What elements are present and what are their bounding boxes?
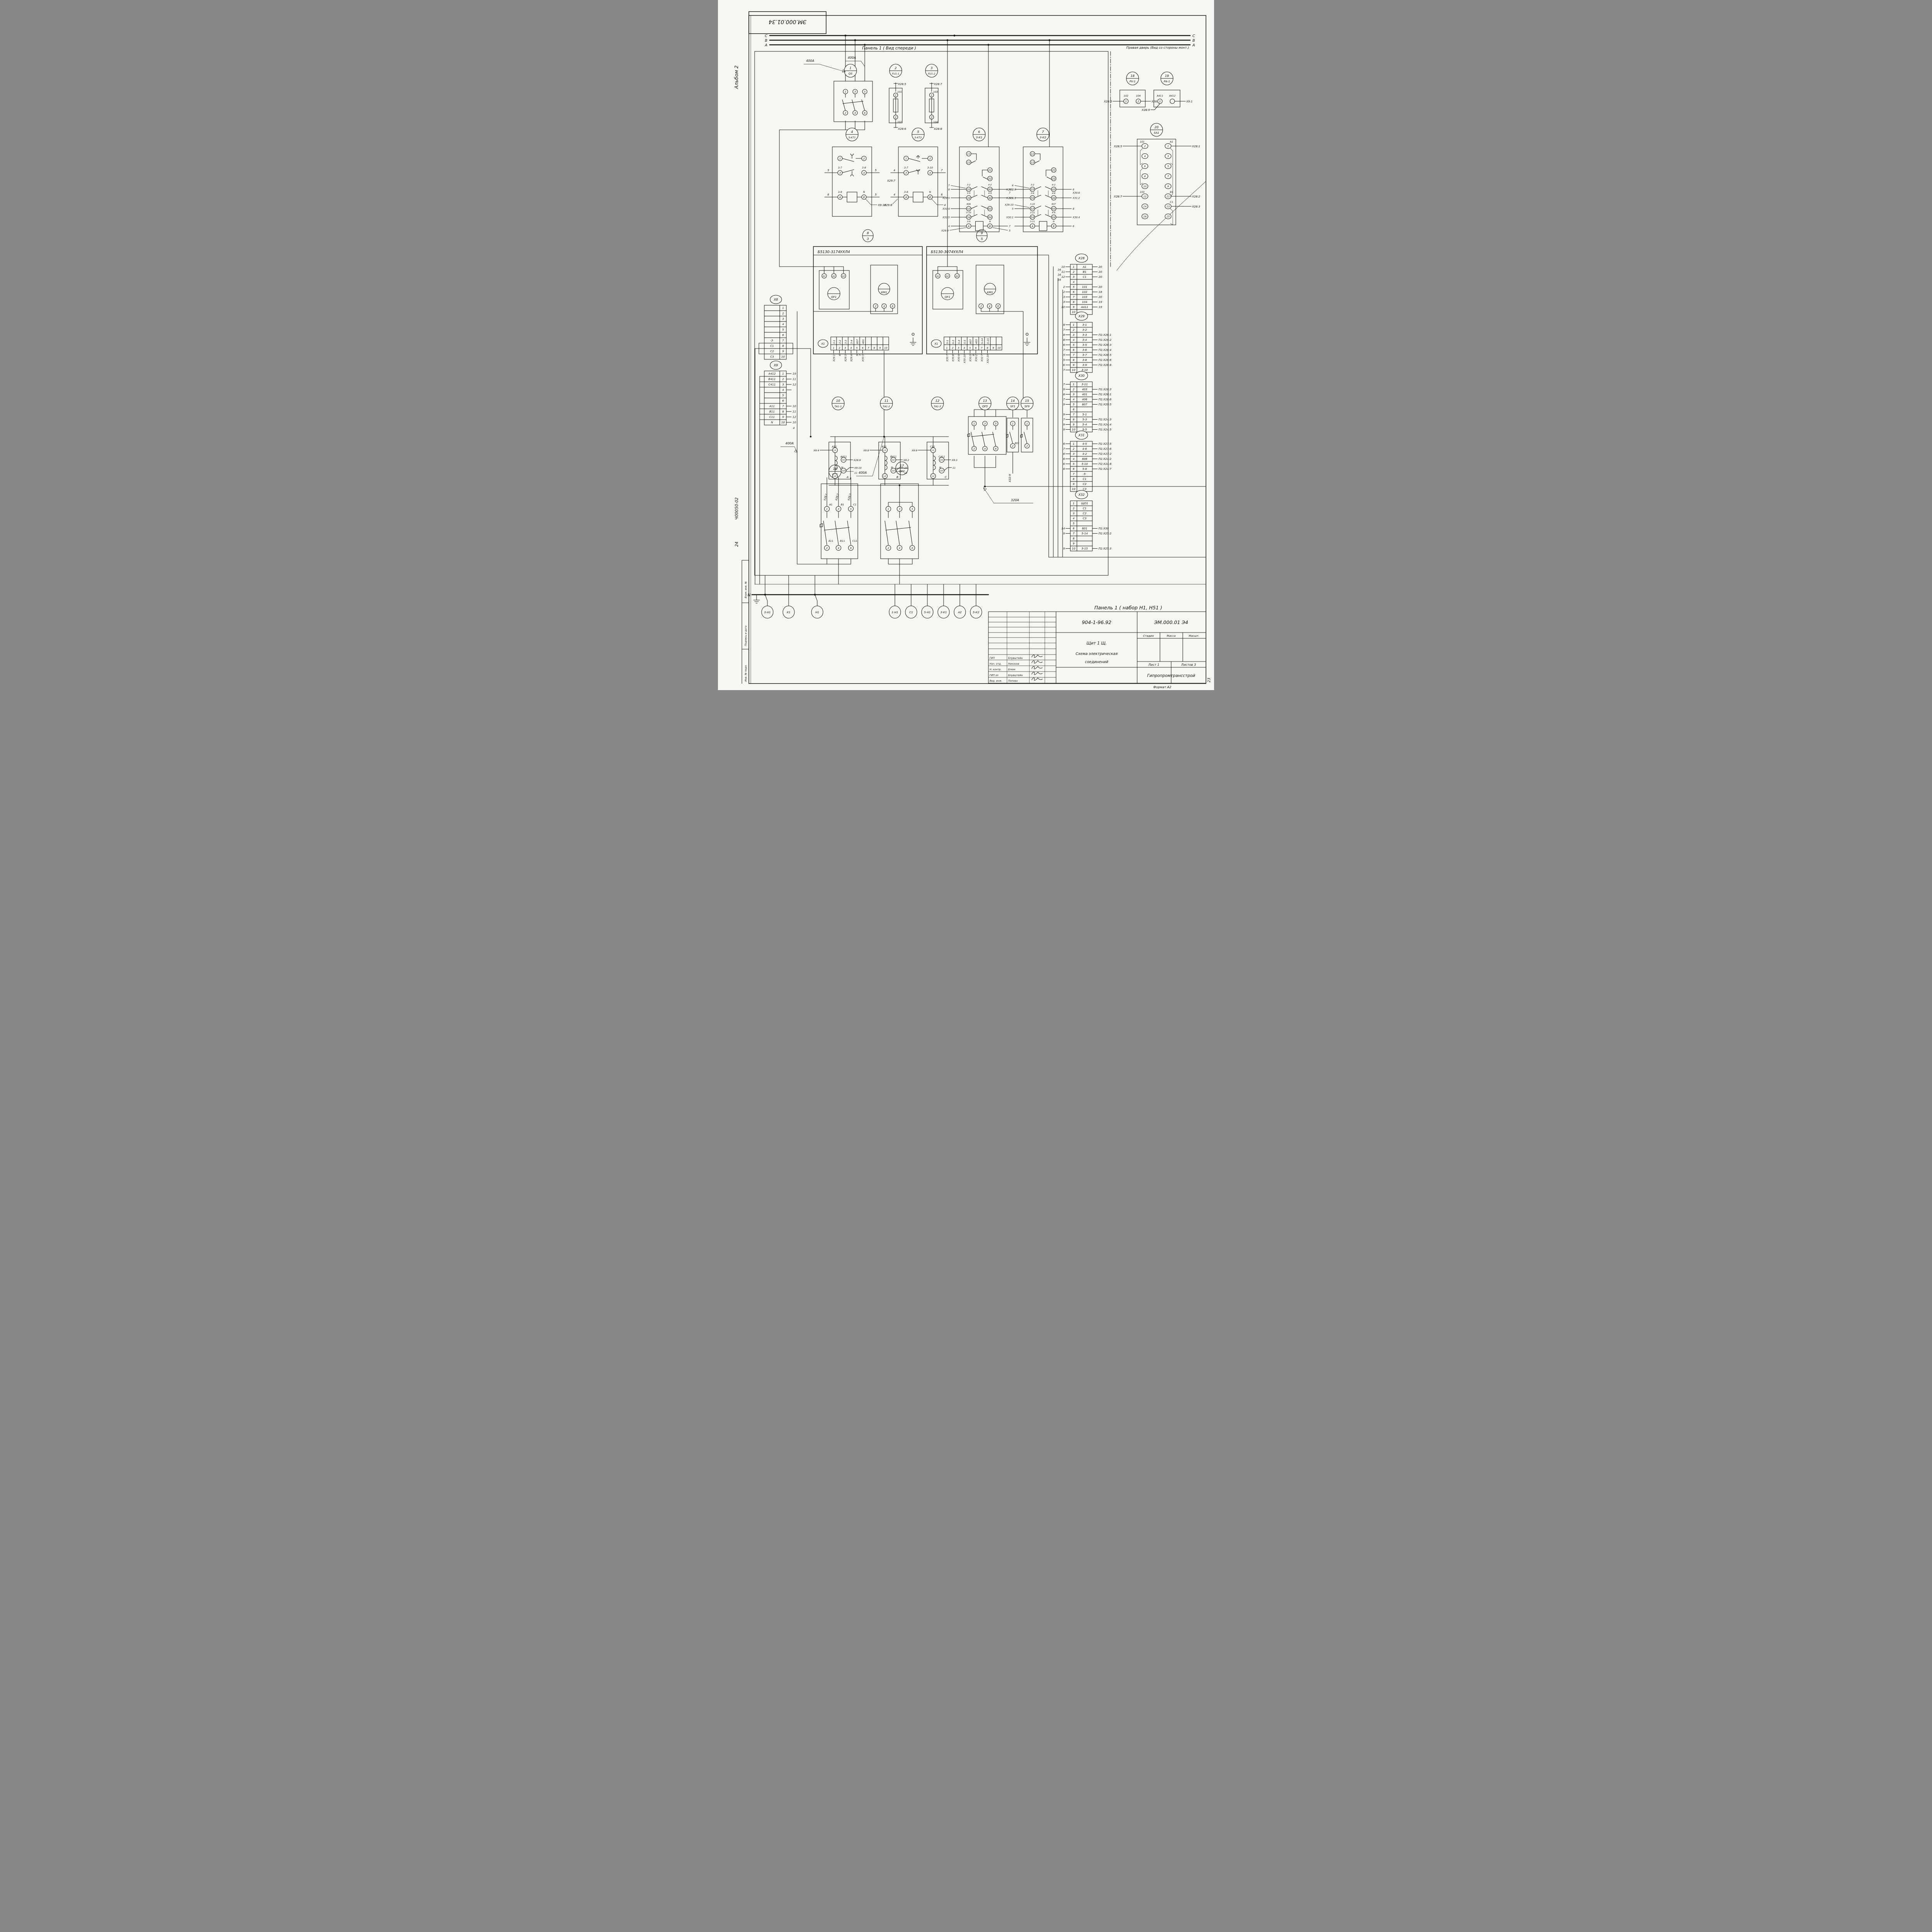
svg-text:5: 5: [782, 394, 784, 397]
svg-text:4: 4: [893, 168, 895, 172]
svg-text:7: 7: [1167, 175, 1169, 178]
svg-text:6: 6: [978, 130, 980, 134]
tag-SF9: 15SF9: [1021, 397, 1033, 410]
svg-text:N: N: [989, 221, 991, 223]
amp-label: 320А: [1011, 498, 1019, 502]
svg-text:21: 21: [1052, 169, 1055, 172]
svg-text:102: 102: [1124, 94, 1128, 97]
svg-text:19: 19: [793, 372, 796, 376]
svg-text:7: 7: [941, 168, 943, 172]
svg-text:5-3: 5-3: [1082, 418, 1087, 421]
x1-cell: 10: [883, 337, 889, 350]
strip-row: 34018П2.Х28:1: [1063, 392, 1111, 397]
svg-text:10: 10: [1072, 428, 1076, 431]
svg-text:4: 4: [893, 193, 895, 196]
format-label: Формат А2: [1153, 685, 1172, 689]
svg-text:П2.Х30: П2.Х30: [1099, 527, 1109, 530]
svg-text:5: 5: [864, 90, 866, 94]
svg-text:А3: А3: [842, 276, 845, 278]
svg-text:3-11: 3-11: [1030, 212, 1035, 214]
strip-row: 7·5·: [1070, 471, 1092, 476]
svg-text:6: 6: [1144, 165, 1146, 168]
svg-text:4: 4: [883, 305, 885, 308]
svg-text:44: 44: [988, 197, 992, 200]
svg-text:2: 2: [1026, 445, 1028, 448]
strip-row: 4С3: [1070, 516, 1092, 521]
svg-text:8: 8: [948, 188, 950, 191]
strip-row: 4: [1070, 279, 1092, 284]
svg-text:U2: U2: [940, 470, 943, 472]
svg-text:2: 2: [1073, 447, 1075, 451]
svg-text:3-Н1: 3-Н1: [764, 611, 770, 614]
svg-text:N: N: [1053, 221, 1055, 223]
svg-text:11: 11: [854, 471, 857, 474]
svg-text:ГИП: ГИП: [990, 656, 995, 660]
svg-text:406: 406: [1082, 398, 1087, 401]
svg-text:1: 1: [839, 157, 841, 160]
page-number: 23: [1207, 678, 1211, 682]
svg-text:63: 63: [988, 207, 992, 211]
strip-row: 4: [764, 321, 786, 327]
svg-text:П2.Х28:3: П2.Х28:3: [1099, 388, 1112, 391]
svg-text:А2: А2: [946, 276, 949, 278]
svg-text:С3: С3: [1083, 517, 1087, 520]
svg-text:103: 103: [1140, 190, 1145, 194]
svg-text:10: 10: [904, 466, 907, 469]
svg-text:С1: С1: [1083, 477, 1087, 481]
sheet-number-hand: 24: [735, 542, 739, 547]
sheets-label: Листов 3: [1181, 663, 1196, 667]
strip-row: 33-38П2.Х26:1: [1063, 332, 1111, 337]
title-block: Панель 1 ( набор Н1, Н51 ) 904-1-96.92 Э…: [988, 605, 1206, 683]
svg-text:6: 6: [1063, 467, 1065, 471]
svg-text:В1: В1: [1083, 270, 1087, 274]
strip-row: 34-26П2:Х27:2: [1063, 451, 1111, 456]
svg-text:Х30:8: Х30:8: [1072, 191, 1080, 194]
svg-text:А: А: [846, 475, 849, 479]
panel-set-title: Панель 1 ( набор Н1, Н51 ): [1094, 605, 1162, 611]
x9-extra-anno: 4: [793, 426, 795, 430]
svg-text:9: 9: [992, 347, 994, 350]
svg-text:8: 8: [1073, 477, 1075, 481]
svg-text:ГИП эл: ГИП эл: [990, 673, 998, 677]
svg-text:С11: С11: [852, 539, 857, 543]
svg-text:3-4: 3-4: [850, 340, 853, 344]
svg-text:3: 3: [905, 172, 907, 175]
margin-label: Подпись и дата: [744, 626, 747, 646]
svg-text:102: 102: [1082, 290, 1087, 294]
svg-text:3: 3: [839, 172, 841, 175]
svg-text:2: 2: [782, 312, 784, 315]
svg-text:3-5: 3-5: [967, 192, 971, 195]
strip-row: В11811: [764, 409, 796, 414]
svg-text:Х28:1: Х28:1: [1192, 145, 1200, 148]
bus-label-b-left: В: [765, 39, 767, 43]
svg-text:2: 2: [1073, 270, 1075, 274]
svg-text:А1: А1: [936, 276, 939, 278]
svg-text:103: 103: [933, 90, 938, 94]
strip-row: 9А4111019: [1061, 304, 1102, 310]
svg-text:С2: С2: [1083, 512, 1087, 515]
svg-text:807: 807: [1082, 403, 1087, 406]
svg-text:Н1: Н1: [815, 611, 819, 614]
svg-text:2: 2: [1063, 285, 1065, 289]
svg-text:1: 1: [849, 66, 851, 70]
tag-3-К2: 73-К2: [1037, 128, 1049, 141]
strip-row: 13-18: [1063, 322, 1092, 327]
svg-text:L2: L2: [884, 475, 886, 478]
svg-text:6: 6: [1063, 462, 1065, 466]
svg-text:11: 11: [793, 410, 796, 413]
tag-FU1-1: 2FU1-1: [889, 64, 902, 77]
svg-text:1: 1: [973, 422, 975, 425]
svg-text:5: 5: [969, 347, 971, 350]
amp-label: 400А: [859, 471, 867, 474]
svg-text:7: 7: [1009, 191, 1010, 194]
tag-block-9: 95: [976, 230, 987, 242]
svg-text:А412: А412: [768, 372, 776, 376]
svg-text:2: 2: [929, 157, 931, 160]
svg-text:12: 12: [967, 161, 970, 164]
svg-text:5: 5: [1063, 358, 1065, 362]
svg-text:7: 7: [1073, 472, 1075, 476]
svg-text:ЩО1: ЩО1: [1081, 502, 1088, 505]
svg-text:20: 20: [1099, 285, 1102, 289]
svg-text:5: 5: [875, 193, 877, 196]
svg-text:4: 4: [1073, 398, 1075, 401]
svg-text:Х29:9: Х29:9: [941, 229, 949, 232]
svg-text:Х9:2: Х9:2: [903, 459, 909, 462]
strip-row: 44067П2.Х28:6: [1063, 397, 1111, 402]
svg-text:33: 33: [967, 188, 970, 191]
svg-text:Х32:7: Х32:7: [981, 354, 984, 362]
svg-text:А11: А11: [769, 405, 775, 408]
tag-PV-1: 18PV-1: [1126, 72, 1139, 85]
tag-ТА1-3: 12ТА1-3: [931, 397, 944, 410]
svg-text:13: 13: [983, 399, 987, 403]
svg-text:3: 3: [844, 347, 846, 350]
svg-text:2: 2: [973, 447, 975, 451]
svg-text:SF1: SF1: [1010, 405, 1015, 408]
svg-text:1: 1: [833, 347, 834, 350]
svg-text:2: 2: [863, 157, 865, 160]
svg-text:1: 1: [946, 347, 947, 350]
svg-text:5: 5: [875, 168, 877, 172]
svg-text:U1: U1: [940, 459, 943, 461]
svg-text:Х9:1: Х9:1: [1186, 100, 1193, 103]
svg-text:3-1: 3-1: [833, 340, 836, 344]
svg-text:3-9: 3-9: [967, 221, 971, 223]
svg-text:U2: U2: [842, 470, 845, 472]
svg-text:Х30: Х30: [1078, 374, 1085, 378]
svg-text:5: 5: [1073, 285, 1075, 289]
svg-text:4: 4: [948, 225, 950, 228]
svg-text:1: 1: [905, 157, 907, 160]
svg-text:3: 3: [1073, 512, 1075, 515]
svg-text:6: 6: [1063, 452, 1065, 456]
svg-text:Х8: Х8: [774, 298, 778, 301]
svg-text:QF1: QF1: [945, 295, 950, 299]
svg-text:3-9: 3-9: [838, 190, 842, 194]
bus-label-a-left: А: [765, 43, 768, 48]
svg-text:9: 9: [1073, 423, 1075, 426]
tag-ТА1-2: 11ТА1-2: [880, 397, 893, 410]
svg-text:3: 3: [1073, 275, 1075, 279]
svg-text:8: 8: [782, 410, 784, 413]
svg-text:L1: L1: [932, 449, 935, 452]
amp-label: 400А: [848, 56, 856, 60]
svg-text:8: 8: [986, 347, 988, 350]
svg-text:А1: А1: [1170, 140, 1173, 143]
svg-text:16: 16: [1058, 268, 1061, 272]
svg-text:·5·: ·5·: [1083, 472, 1086, 476]
svg-text:5: 5: [1073, 403, 1075, 406]
svg-text:1: 1: [845, 90, 846, 94]
svg-text:SA1: SA1: [1154, 131, 1159, 134]
strip-row: 5101220: [1063, 284, 1102, 289]
svg-text:1: 1: [1012, 422, 1014, 425]
svg-text:5-1: 5-1: [946, 340, 949, 344]
svg-text:3: 3: [867, 237, 869, 241]
svg-text:А412: А412: [1169, 94, 1176, 97]
svg-text:С1: С1: [853, 503, 857, 506]
svg-text:10: 10: [793, 405, 796, 408]
x1-cell: 3-11Х29:1: [831, 337, 837, 362]
strip-row: 23-27: [1063, 327, 1092, 332]
svg-text:4-6: 4-6: [1082, 447, 1087, 451]
svg-text:7: 7: [1063, 383, 1065, 386]
svg-text:Х29:5: Х29:5: [942, 197, 950, 200]
svg-text:18: 18: [1099, 290, 1102, 294]
doc-number: 904-1-96.92: [1082, 619, 1112, 625]
strip-row: А11710: [764, 403, 796, 409]
svg-text:П2.Х26:2: П2.Х26:2: [1099, 338, 1112, 342]
strip-row: 93-96П2.Х26:8: [1063, 362, 1111, 367]
svg-text:12: 12: [1143, 195, 1146, 198]
svg-text:807: 807: [1052, 203, 1056, 206]
svg-text:8: 8: [1073, 358, 1075, 362]
device-3kt1: 1 2 3-7 3-8 3 4 5 5 3-9 N А В 6 5 Х9:10: [825, 147, 886, 216]
svg-text:4: 4: [850, 347, 852, 350]
svg-text:7: 7: [1063, 418, 1065, 421]
strip-row: 2С1: [1070, 506, 1092, 511]
svg-text:7: 7: [1063, 368, 1065, 372]
svg-text:11: 11: [884, 399, 888, 403]
svg-text:QS: QS: [849, 72, 853, 75]
svg-text:6: 6: [1063, 457, 1065, 461]
svg-text:1: 1: [888, 508, 889, 511]
device-ТА1-3: С11L1Х9:9С411U1Х9:3NU211L2С: [911, 442, 957, 479]
neutral-bus: N: [748, 593, 988, 603]
svg-text:ТА1-2: ТА1-2: [883, 405, 890, 408]
svg-text:Блувштейн: Блувштейн: [1008, 656, 1023, 660]
svg-text:Х28:8: Х28:8: [934, 127, 942, 131]
svg-text:3-2: 3-2: [838, 340, 842, 344]
svg-text:22: 22: [988, 177, 992, 180]
strip-row: 95-49П2.Х24:4: [1063, 422, 1111, 427]
svg-text:5: 5: [856, 347, 857, 350]
svg-text:15: 15: [1167, 215, 1170, 218]
svg-text:Б5130-3074УХЛ4: Б5130-3074УХЛ4: [931, 250, 963, 254]
svg-text:3-3: 3-3: [1082, 333, 1087, 337]
strip-row: ·3·7: [764, 338, 786, 343]
bottom-terminals: 3-Н1 К1 Н1 1-Н1 С1 5-Н1 3-К1 А2 5-К2: [762, 575, 982, 618]
svg-text:8: 8: [1144, 175, 1146, 178]
svg-text:4-2: 4-2: [988, 184, 992, 186]
album-label: Альбом 2: [733, 65, 739, 89]
strip-row: 55-106П2:Х24:8: [1063, 461, 1111, 466]
strip-row: 5: [764, 327, 786, 332]
svg-text:В11: В11: [769, 410, 775, 413]
svg-text:33: 33: [1031, 188, 1034, 191]
stage-header: Стадия: [1143, 634, 1154, 638]
strip-tags: Х8 Х9 Х28 Х29 Х30 Х31 Х32: [770, 254, 1088, 499]
svg-text:9: 9: [1063, 428, 1065, 431]
current-transformers: А11L1Х9:4А411U1Х28:9NU2Х9:1011L2АВ11L1Х9…: [813, 442, 957, 479]
svg-text:6: 6: [782, 333, 784, 337]
svg-text:Х31:4: Х31:4: [942, 207, 950, 211]
svg-text:2: 2: [952, 347, 953, 350]
svg-text:3-8: 3-8: [904, 190, 908, 194]
svg-text:3-КТ1: 3-КТ1: [849, 136, 856, 139]
svg-text:4-2: 4-2: [1052, 184, 1056, 186]
svg-text:1: 1: [1073, 323, 1075, 327]
svg-text:11: 11: [1031, 153, 1034, 156]
svg-text:3-6: 3-6: [1031, 192, 1034, 195]
svg-text:КМ1: КМ1: [987, 291, 993, 294]
svg-text:Х29:8: Х29:8: [884, 203, 892, 207]
svg-text:U2: U2: [892, 470, 895, 472]
svg-text:Х32:10: Х32:10: [986, 354, 990, 364]
svg-text:10: 10: [1072, 547, 1076, 550]
svg-text:10: 10: [781, 421, 785, 424]
svg-text:U1: U1: [842, 459, 845, 461]
svg-text:Блувштейн: Блувштейн: [1008, 673, 1023, 677]
svg-text:Х29:1: Х29:1: [833, 354, 836, 362]
svg-text:102: 102: [897, 121, 902, 124]
svg-text:7: 7: [1073, 532, 1075, 535]
svg-text:2: 2: [1073, 507, 1075, 510]
x1-cell: 5-32Х30:8: [950, 337, 956, 362]
svg-text:П2.Х27:5: П2.Х27:5: [1099, 442, 1112, 446]
x1-cell: 8: [871, 337, 877, 350]
strip-x32: 1ЩО12С13С24С35680114П2.Х3075-149П2.Х25:2…: [1061, 501, 1112, 551]
device-pv1: 102 104 1 2 Х28:6 Х28:8: [1104, 90, 1160, 107]
svg-text:3-КТ2: 3-КТ2: [915, 136, 922, 139]
svg-text:N: N: [771, 421, 773, 424]
svg-text:7: 7: [981, 347, 982, 350]
svg-text:19: 19: [1165, 74, 1169, 78]
doc-code: ЭМ.000.01 Э4: [1154, 619, 1188, 625]
svg-text:2: 2: [1144, 145, 1146, 148]
svg-text:Х32:9: Х32:9: [1008, 474, 1012, 483]
strip-x28: 1А11016202В11116203С11216204510122061022…: [1058, 264, 1102, 315]
svg-text:С1: С1: [909, 611, 913, 614]
svg-text:15: 15: [1025, 399, 1029, 403]
svg-text:Х28:6: Х28:6: [898, 127, 906, 131]
svg-text:П2.Х24:3: П2.Х24:3: [1099, 418, 1112, 421]
svg-text:2: 2: [980, 305, 982, 308]
svg-text:5: 5: [1073, 343, 1075, 347]
svg-text:3: 3: [782, 383, 784, 386]
device-3kt2: 1 2 3-7 3-10 3 4 4 Х29:7 7 3-8 N А В 4 Х…: [884, 147, 946, 216]
svg-text:8: 8: [782, 344, 784, 348]
svg-text:С: С: [945, 475, 947, 479]
svg-text:С3: С3: [770, 355, 774, 359]
svg-text:3: 3: [854, 90, 856, 94]
svg-text:9: 9: [782, 415, 784, 419]
x1-cell: 3-33Х29:3: [842, 337, 848, 362]
svg-text:П2.Х24:5: П2.Х24:5: [1099, 428, 1112, 431]
svg-text:103: 103: [1082, 295, 1087, 299]
svg-text:1: 1: [1125, 100, 1127, 103]
svg-text:7: 7: [782, 339, 784, 342]
svg-text:3-2: 3-2: [1082, 328, 1087, 332]
svg-text:6: 6: [862, 347, 863, 350]
strip-row: 8104319: [1063, 299, 1102, 304]
svg-text:34: 34: [967, 197, 970, 200]
svg-text:2: 2: [1063, 290, 1065, 294]
schematic-sheet: Взам. инв. № Подпись и дата Инв. № подл.…: [718, 0, 1214, 690]
svg-text:1: 1: [1073, 383, 1075, 386]
device-qf1-16: Х28:1 Х28:2 Х28:3 А1 В1 С1 1 3 5 А11 В11…: [820, 484, 858, 559]
svg-text:4: 4: [851, 130, 853, 134]
svg-text:8: 8: [1063, 393, 1065, 396]
svg-text:А1: А1: [822, 276, 825, 278]
svg-text:4: 4: [1073, 517, 1075, 520]
svg-text:4: 4: [1073, 457, 1075, 461]
svg-text:SF9: SF9: [1024, 405, 1030, 408]
svg-text:2: 2: [875, 305, 876, 308]
svg-text:Х32: Х32: [1078, 493, 1085, 497]
svg-text:3: 3: [1063, 300, 1065, 304]
tag-QF5: 13QF5: [979, 397, 991, 410]
strip-row: 75-149П2.Х25:2: [1063, 531, 1111, 536]
svg-text:С1: С1: [1083, 275, 1087, 279]
strip-row: 4: [764, 387, 786, 393]
svg-text:1: 1: [895, 94, 896, 97]
svg-text:54: 54: [1031, 216, 1034, 219]
svg-text:9: 9: [1063, 547, 1065, 550]
svg-text:11: 11: [793, 378, 796, 381]
svg-text:43: 43: [988, 188, 992, 191]
svg-text:6: 6: [997, 305, 999, 308]
wires: [755, 36, 1206, 584]
svg-text:ТА1-1: ТА1-1: [835, 405, 842, 408]
svg-text:П2.Х26:6: П2.Х26:6: [1099, 358, 1112, 362]
svg-text:64: 64: [988, 216, 992, 219]
svg-text:5: 5: [1063, 353, 1065, 357]
tag-PA-1: 19PA-1: [1161, 72, 1173, 85]
svg-text:5-5: 5-5: [963, 340, 966, 344]
svg-text:3-11: 3-11: [1082, 383, 1088, 386]
svg-text:7: 7: [782, 405, 784, 408]
strip-x31: 14-56П2.Х27:524-67П2.Х27:634-26П2:Х27:24…: [1063, 441, 1111, 492]
svg-text:6: 6: [1073, 225, 1074, 228]
block9-x1-strip: 5-11Х30:75-32Х30:85-43Х30:95-54Х30:10807…: [944, 337, 1002, 364]
svg-text:А: А: [968, 225, 969, 228]
svg-text:4: 4: [1073, 338, 1075, 342]
svg-text:12: 12: [793, 383, 796, 386]
x1-cell: 807597: [854, 337, 862, 356]
strip-x8: 123456·3·7С18С29С310: [764, 305, 786, 359]
tag-FU1-2: 3FU1-2: [925, 64, 938, 77]
svg-text:3-К1: 3-К1: [940, 611, 947, 614]
svg-text:Попова: Попова: [1008, 679, 1018, 682]
device-sa1: 2101468101210314161А1357911В113С115 Х28:…: [1114, 139, 1201, 225]
svg-text:101: 101: [897, 90, 902, 94]
svg-text:А11: А11: [828, 539, 833, 543]
